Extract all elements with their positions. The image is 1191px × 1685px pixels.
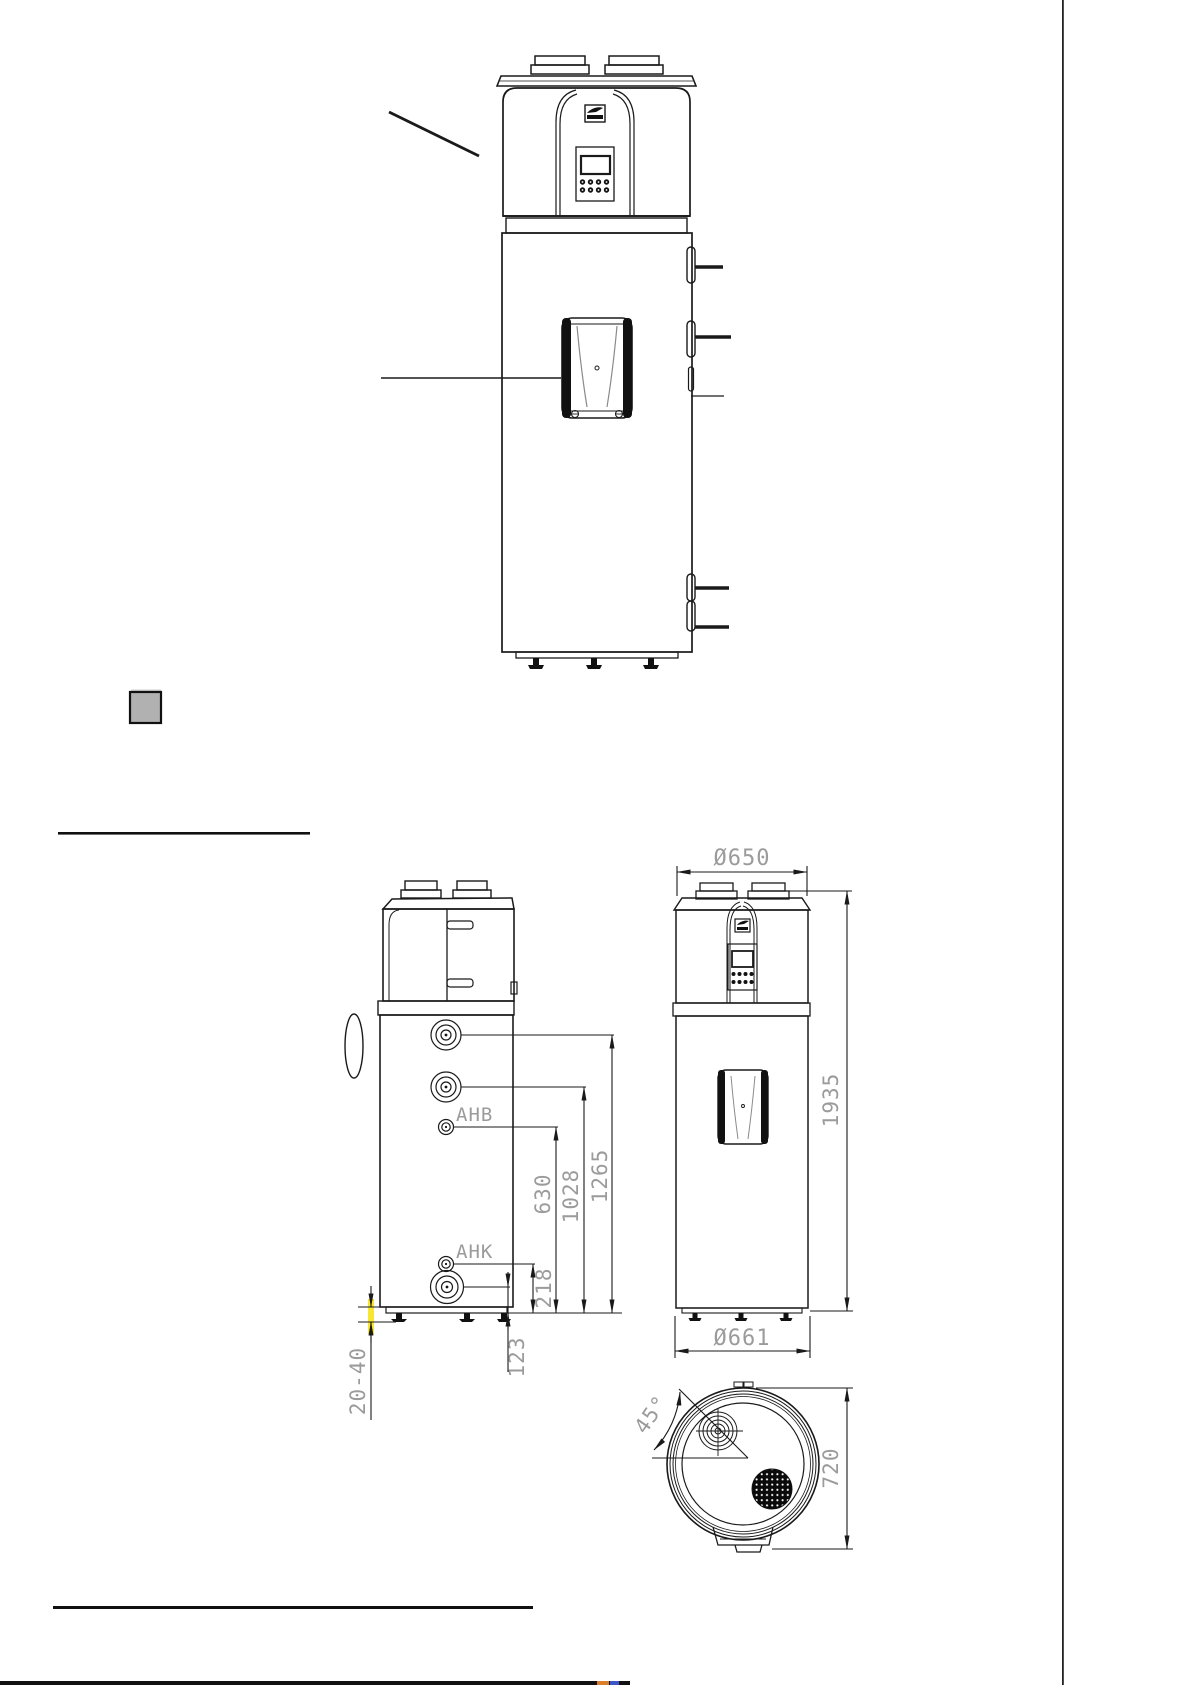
front-brand-badge xyxy=(735,919,750,932)
port-label-ahk: AHK xyxy=(456,1241,493,1263)
front-feet xyxy=(689,1313,793,1321)
rating-label-window xyxy=(562,318,632,418)
dim-label-630: 630 xyxy=(531,1174,555,1215)
brand-swoosh-icon xyxy=(587,107,603,113)
front-label-window xyxy=(718,1070,768,1144)
left-duct-collar xyxy=(531,56,589,74)
manual-page: 1265 1028 630 218 123 20-40 AHB AHK xyxy=(0,0,1191,1685)
brand-badge xyxy=(585,105,605,122)
dim-label-45: 45° xyxy=(630,1391,673,1438)
figure-top-view: 45° 720 xyxy=(630,1382,853,1552)
tank-body xyxy=(502,233,692,652)
perforated-port-marker xyxy=(752,1469,792,1509)
tank-top-outline xyxy=(667,1382,819,1540)
side-tank xyxy=(345,1001,514,1322)
bottom-accent-orange xyxy=(597,1681,609,1685)
control-buttons xyxy=(580,179,609,192)
page-bottom-edge xyxy=(0,1681,630,1685)
side-dimension-lines xyxy=(358,1035,612,1420)
figure-side-view: 1265 1028 630 218 123 20-40 AHB AHK xyxy=(345,881,622,1420)
dim-label-650: Ø650 xyxy=(714,846,771,871)
port-1028 xyxy=(431,1072,461,1102)
port-123 xyxy=(431,1271,464,1304)
side-top-unit xyxy=(383,881,517,1001)
hinge-lower xyxy=(447,979,473,987)
dim-label-1935: 1935 xyxy=(819,1073,843,1128)
front-tank xyxy=(673,1003,810,1321)
bottom-accent-blue xyxy=(610,1681,619,1685)
dim-label-foot-range: 20-40 xyxy=(346,1347,370,1415)
right-duct-collar xyxy=(605,56,663,74)
dim-label-123: 123 xyxy=(505,1337,529,1378)
adjustable-feet xyxy=(528,658,659,669)
callout-top-unit xyxy=(389,112,479,156)
port-1265 xyxy=(431,1020,461,1050)
figure-front-view-dimensioned: Ø650 1935 Ø661 xyxy=(673,846,853,1358)
tank-collar-band xyxy=(506,218,687,233)
display-screen xyxy=(581,156,610,174)
tank-base xyxy=(516,652,678,669)
dim-label-720: 720 xyxy=(819,1448,843,1489)
port-label-ahb: AHB xyxy=(456,1104,493,1126)
heatpump-top-unit xyxy=(497,56,696,216)
handle-recess xyxy=(345,1014,363,1078)
front-top-unit xyxy=(674,883,810,1003)
unit-body xyxy=(503,88,690,216)
port-ahk xyxy=(439,1257,454,1272)
side-feet xyxy=(391,1313,511,1322)
footer-rule xyxy=(53,1606,533,1609)
page-right-border xyxy=(1062,0,1064,1685)
port-ahb xyxy=(439,1120,454,1135)
storage-tank xyxy=(502,218,695,669)
concentric-port-marker xyxy=(696,1409,743,1456)
figure-front-view xyxy=(381,56,731,669)
dim-label-661: Ø661 xyxy=(714,1326,771,1351)
legend-color-swatch xyxy=(130,691,161,724)
heading-underline xyxy=(58,832,310,835)
hinge-upper xyxy=(447,921,473,929)
front-control-panel xyxy=(728,944,757,990)
dim-label-218: 218 xyxy=(532,1268,556,1309)
dim-label-1265: 1265 xyxy=(588,1149,612,1204)
dim-label-1028: 1028 xyxy=(559,1169,583,1224)
control-panel xyxy=(576,147,614,201)
pipe-fittings xyxy=(687,247,695,631)
page-canvas: 1265 1028 630 218 123 20-40 AHB AHK xyxy=(0,0,1191,1685)
